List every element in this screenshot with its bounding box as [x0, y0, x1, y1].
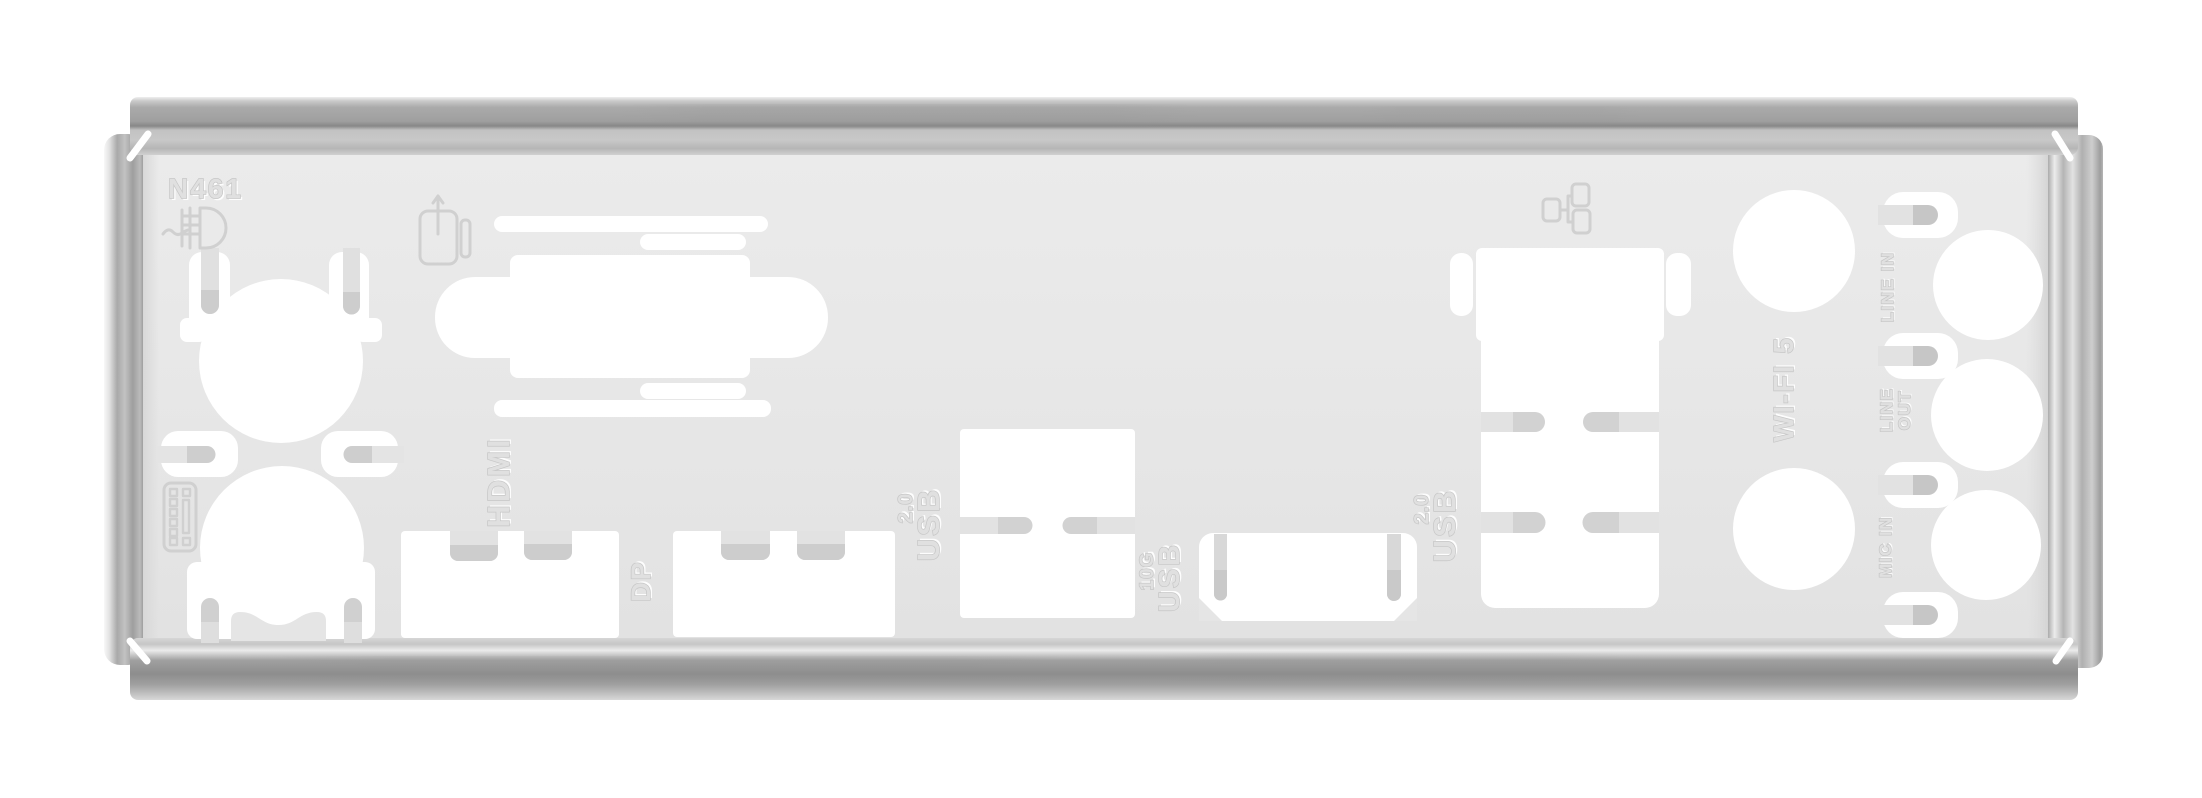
svg-text:2.0: 2.0 [895, 493, 917, 524]
svg-text:OUT: OUT [1895, 390, 1914, 430]
svg-text:2.0: 2.0 [1411, 494, 1433, 525]
svg-text:N461: N461 [168, 173, 243, 204]
svg-text:LINE: LINE [1877, 388, 1896, 433]
svg-text:HDMI: HDMI [481, 436, 516, 527]
svg-text:DP: DP [626, 560, 656, 602]
svg-text:10G: 10G [1137, 552, 1158, 591]
svg-text:MIC IN: MIC IN [1876, 516, 1895, 578]
svg-text:LINE IN: LINE IN [1878, 252, 1897, 323]
svg-text:WI-FI 5: WI-FI 5 [1768, 336, 1799, 442]
